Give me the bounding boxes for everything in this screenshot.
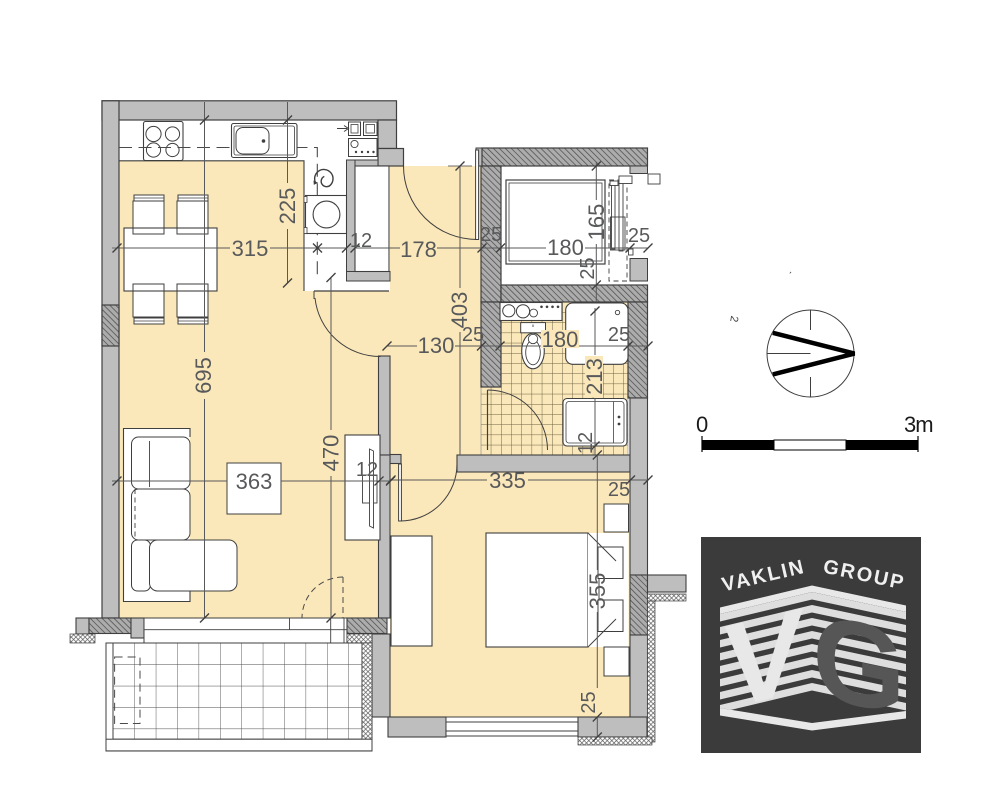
svg-text:180: 180 [542,327,579,352]
svg-text:25: 25 [480,224,502,246]
svg-text:25: 25 [608,479,630,501]
svg-text:470: 470 [319,435,344,472]
svg-text:25: 25 [628,225,650,247]
svg-text:25: 25 [608,324,630,346]
svg-text:225: 225 [275,188,300,225]
svg-text:363: 363 [236,469,273,494]
svg-text:165: 165 [584,204,609,241]
svg-text:695: 695 [191,357,216,394]
svg-text:12: 12 [350,230,372,252]
svg-text:25: 25 [578,691,600,713]
svg-text:180: 180 [547,235,584,260]
svg-text:213: 213 [582,358,607,395]
svg-text:355: 355 [585,573,610,610]
svg-text:315: 315 [232,236,269,261]
svg-text:12: 12 [575,432,597,454]
svg-text:25: 25 [577,257,599,279]
svg-text:178: 178 [400,237,437,262]
svg-text:0: 0 [696,412,708,437]
svg-text:335: 335 [489,468,526,493]
svg-text:3m: 3m [904,412,933,437]
svg-text:12: 12 [356,459,378,481]
svg-text:130: 130 [418,333,455,358]
svg-text:403: 403 [447,292,472,329]
svg-text:25: 25 [462,324,484,346]
